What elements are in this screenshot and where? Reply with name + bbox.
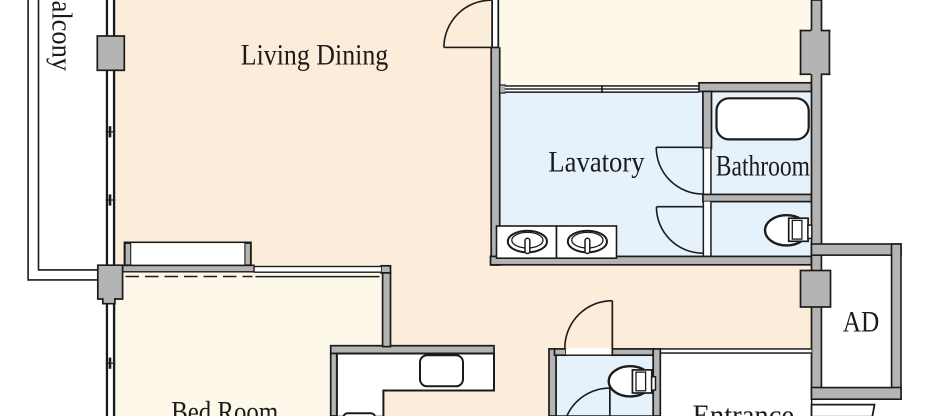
svg-text:Lavatory: Lavatory [548, 146, 644, 178]
svg-text:Bathroom: Bathroom [716, 151, 810, 183]
svg-text:AD: AD [843, 306, 880, 338]
svg-text:Balcony: Balcony [46, 0, 77, 71]
svg-text:Living Dining: Living Dining [241, 40, 389, 72]
svg-text:Entrance: Entrance [692, 400, 794, 416]
svg-text:Bed Room: Bed Room [171, 397, 278, 416]
